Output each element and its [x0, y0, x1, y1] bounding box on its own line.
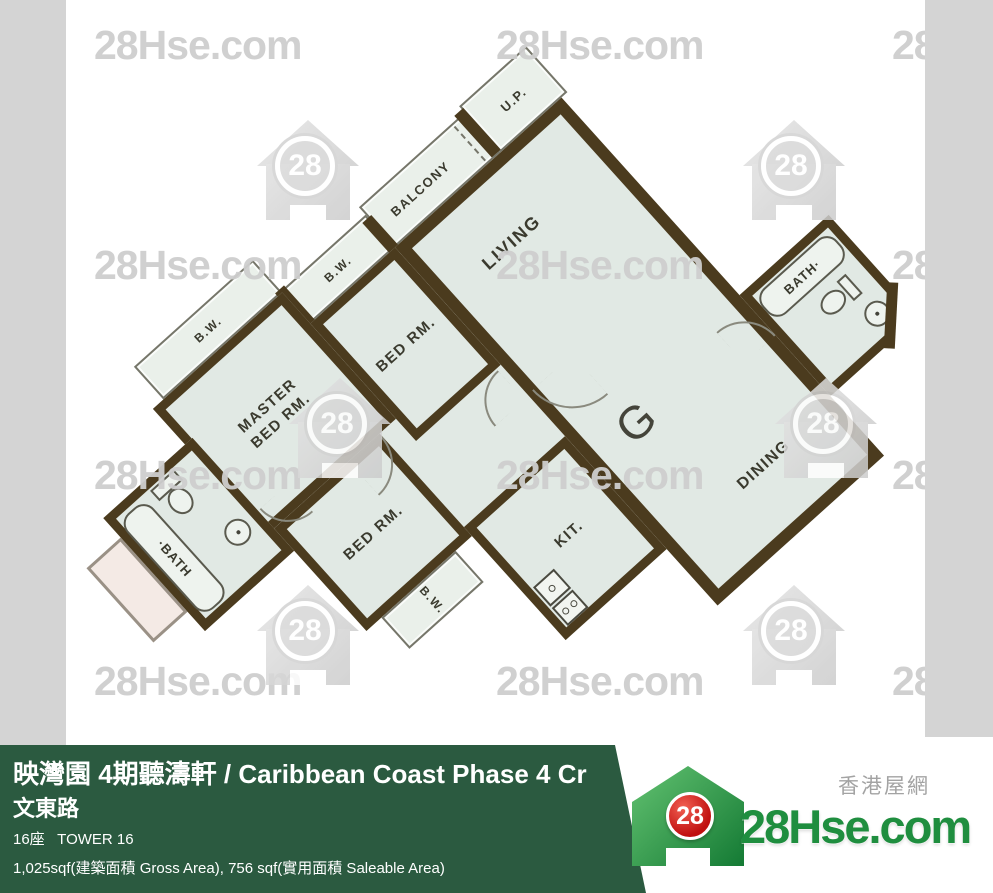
watermark-badge: 28: [761, 601, 821, 661]
logo-tagline: 香港屋網: [838, 770, 930, 800]
watermark-badge: 28: [275, 136, 335, 196]
kitchen-label: KIT.: [551, 517, 587, 551]
bath-right-label: BATH·: [781, 256, 824, 297]
watermark-house-icon: 28: [748, 585, 840, 685]
watermark-badge: 28: [275, 601, 335, 661]
bath-left-label: ·BATH: [154, 536, 195, 579]
bay-window-label: B.W.: [417, 583, 449, 616]
watermark-badge: 28: [307, 394, 367, 454]
bedroom-label: BED RM.: [372, 313, 438, 375]
watermark-badge: 28: [793, 394, 853, 454]
logo-site-name: 28Hse.com: [740, 799, 970, 854]
watermark-text: 28Hse.com: [496, 658, 704, 705]
bedroom-label: BED RM.: [340, 501, 406, 563]
floorplan-page: B.W. B.W. BALCONY U.P. MASTER BED RM. BE…: [0, 0, 993, 893]
watermark-text: 28Hse.com: [496, 22, 704, 69]
watermark-text: 28Hse.com: [94, 22, 302, 69]
watermark-house-icon: 28: [780, 378, 872, 478]
watermark-house-icon: 28: [262, 120, 354, 220]
watermark-text: 28Hse.com: [94, 242, 302, 289]
logo-badge: 28: [666, 792, 714, 840]
watermark-text: 28Hse.com: [496, 452, 704, 499]
tower-name: 16座 TOWER 16: [13, 828, 134, 849]
street-name: 文東路: [13, 791, 79, 823]
watermark-house-icon: 28: [748, 120, 840, 220]
watermark-text: 28Hse.com: [94, 452, 302, 499]
area-info: 1,025sqf(建築面積 Gross Area), 756 sqf(實用面積 …: [13, 857, 445, 878]
watermark-house-icon: 28: [294, 378, 386, 478]
utility-platform-label: U.P.: [497, 84, 529, 115]
bay-window-label: B.W.: [321, 253, 354, 285]
gray-strip-left: [0, 0, 66, 745]
watermark-text: 28Hse.com: [496, 242, 704, 289]
gray-strip-right: [925, 0, 993, 737]
watermark-house-icon: 28: [262, 585, 354, 685]
estate-title: 映灣園 4期聽濤軒 / Caribbean Coast Phase 4 Cr: [13, 754, 605, 791]
bay-window-label: B.W.: [191, 314, 224, 346]
basin-icon: [219, 513, 257, 551]
watermark-badge: 28: [761, 136, 821, 196]
unit-letter: G: [604, 390, 667, 454]
